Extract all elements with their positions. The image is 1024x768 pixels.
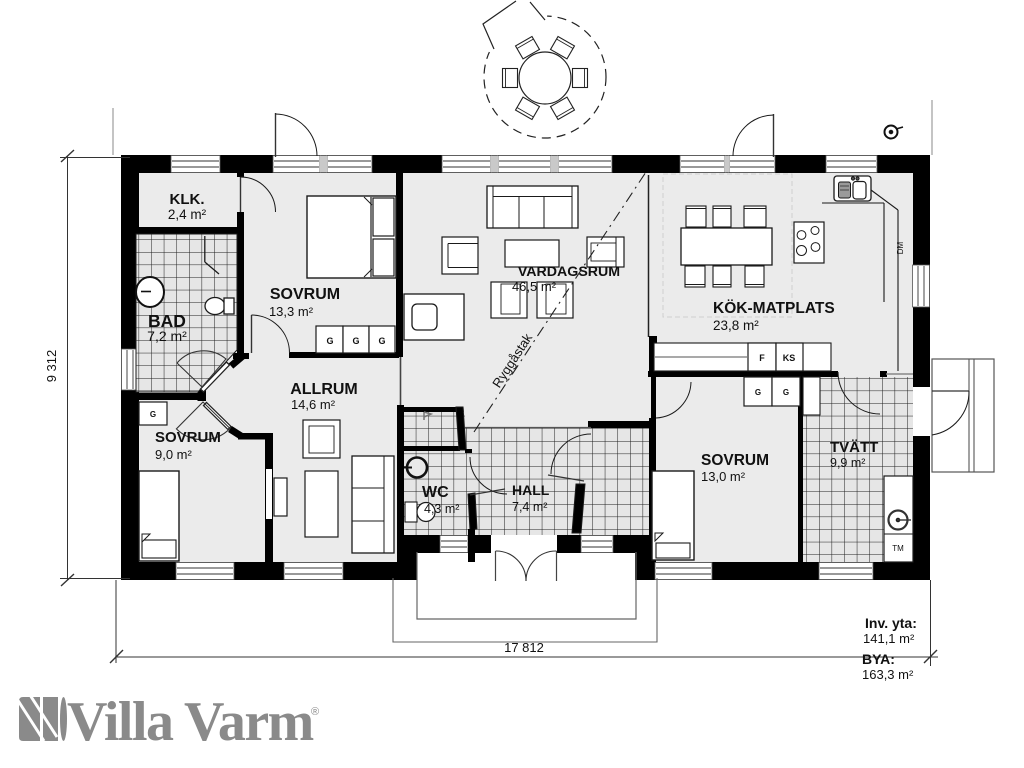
svg-text:G: G bbox=[352, 336, 359, 346]
svg-text:4,3 m²: 4,3 m² bbox=[424, 502, 459, 516]
svg-text:7,4 m²: 7,4 m² bbox=[512, 500, 547, 514]
svg-text:TVÄTT: TVÄTT bbox=[830, 439, 878, 456]
svg-text:VARDAGSRUM: VARDAGSRUM bbox=[518, 264, 620, 280]
svg-text:HALL: HALL bbox=[512, 482, 550, 498]
svg-text:23,8 m²: 23,8 m² bbox=[713, 318, 759, 333]
svg-text:G: G bbox=[378, 336, 385, 346]
svg-text:DM: DM bbox=[896, 241, 905, 254]
svg-text:2,4 m²: 2,4 m² bbox=[168, 207, 207, 222]
svg-text:WC: WC bbox=[422, 484, 449, 501]
svg-text:141,1 m²: 141,1 m² bbox=[863, 631, 915, 646]
svg-text:9,9 m²: 9,9 m² bbox=[830, 456, 865, 470]
svg-text:G: G bbox=[326, 336, 333, 346]
svg-text:SOVRUM: SOVRUM bbox=[270, 286, 340, 303]
svg-text:SOVRUM: SOVRUM bbox=[155, 429, 221, 446]
svg-text:Villa Varm: Villa Varm bbox=[67, 691, 314, 753]
svg-text:163,3 m²: 163,3 m² bbox=[862, 667, 914, 682]
svg-text:KÖK-MATPLATS: KÖK-MATPLATS bbox=[713, 300, 835, 317]
svg-text:TM: TM bbox=[892, 544, 904, 553]
svg-text:SOVRUM: SOVRUM bbox=[701, 452, 769, 469]
svg-text:G: G bbox=[755, 388, 761, 397]
svg-text:Inv. yta:: Inv. yta: bbox=[865, 615, 917, 631]
svg-text:G: G bbox=[783, 388, 789, 397]
svg-text:46,5 m²: 46,5 m² bbox=[512, 279, 557, 294]
svg-text:BYA:: BYA: bbox=[862, 651, 895, 667]
svg-text:7,2 m²: 7,2 m² bbox=[147, 328, 187, 344]
svg-text:G: G bbox=[150, 410, 156, 419]
svg-text:F: F bbox=[759, 353, 765, 363]
svg-text:KLK.: KLK. bbox=[170, 191, 205, 208]
svg-text:14,6 m²: 14,6 m² bbox=[291, 397, 336, 412]
svg-text:KS: KS bbox=[783, 353, 796, 363]
svg-text:9,0 m²: 9,0 m² bbox=[155, 447, 193, 462]
svg-text:13,0 m²: 13,0 m² bbox=[701, 469, 746, 484]
svg-text:13,3 m²: 13,3 m² bbox=[269, 304, 314, 319]
svg-text:17 812: 17 812 bbox=[504, 640, 544, 655]
svg-text:9 312: 9 312 bbox=[44, 350, 59, 383]
svg-text:®: ® bbox=[311, 706, 319, 718]
svg-text:ALLRUM: ALLRUM bbox=[290, 381, 358, 398]
